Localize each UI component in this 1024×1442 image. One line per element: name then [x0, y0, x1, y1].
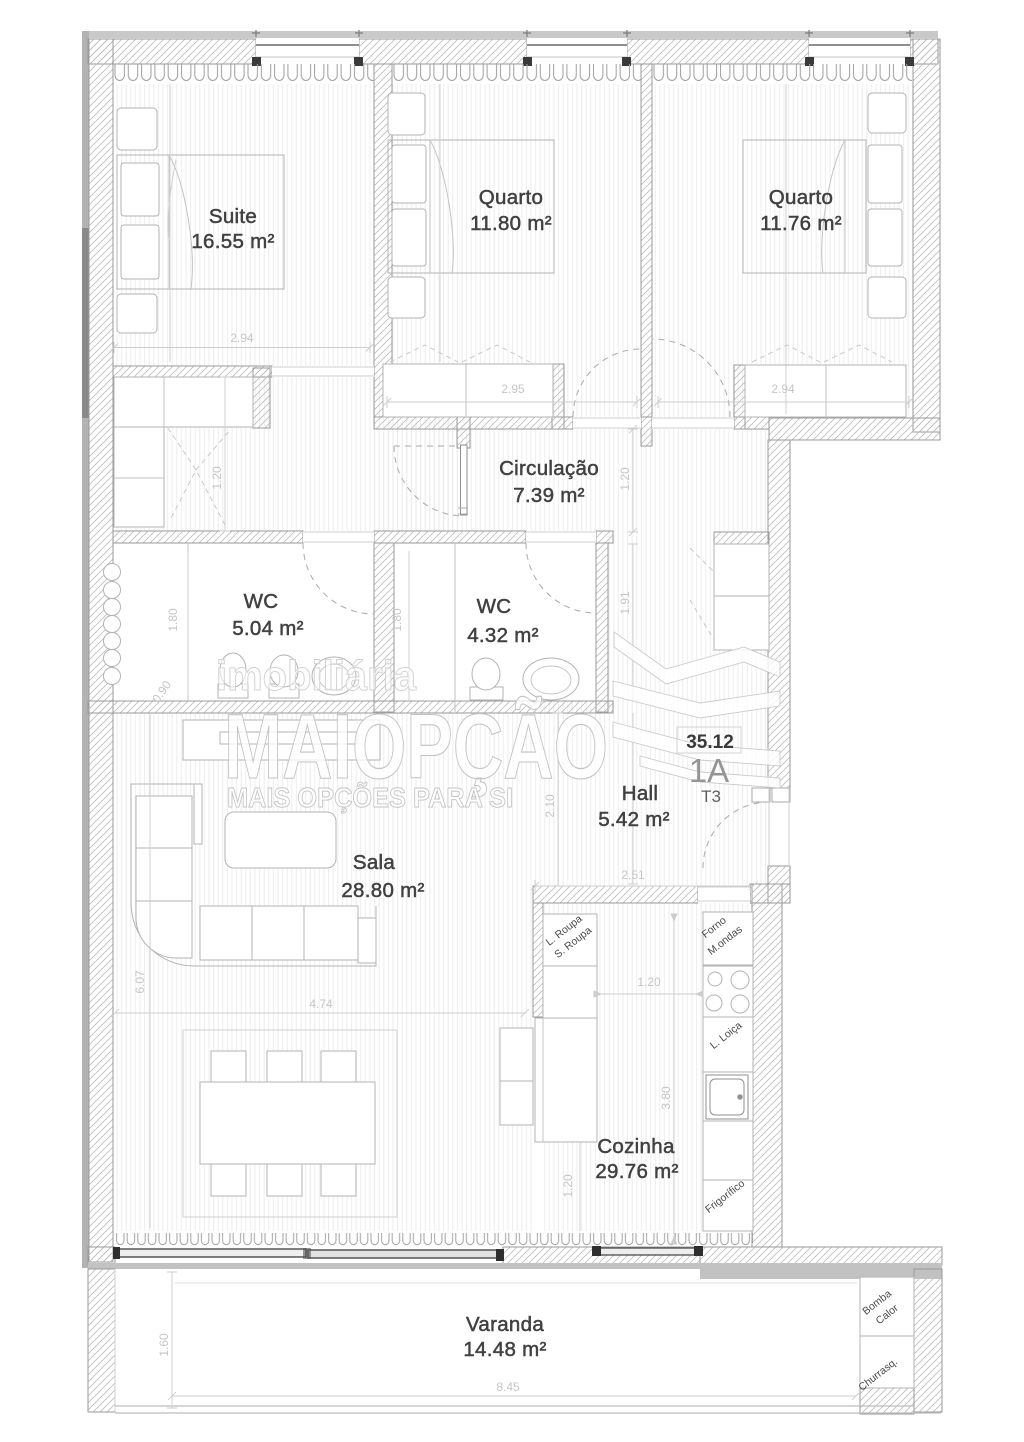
svg-text:1.20: 1.20	[561, 1174, 575, 1198]
svg-text:1.80: 1.80	[390, 608, 404, 632]
svg-text:WC: WC	[244, 590, 279, 613]
svg-text:imobiliária: imobiliária	[216, 652, 417, 699]
svg-text:3.80: 3.80	[659, 1086, 673, 1110]
svg-text:11.80 m²: 11.80 m²	[470, 212, 552, 235]
svg-text:MAIS OPÇÕES PARA SI: MAIS OPÇÕES PARA SI	[227, 782, 513, 813]
svg-text:Varanda: Varanda	[466, 1313, 544, 1336]
svg-text:1.60: 1.60	[157, 1333, 171, 1357]
svg-text:T3: T3	[701, 787, 721, 806]
svg-text:2.51: 2.51	[621, 868, 645, 882]
svg-text:11.76 m²: 11.76 m²	[760, 212, 842, 235]
svg-text:1A: 1A	[689, 752, 729, 789]
svg-text:7.39 m²: 7.39 m²	[513, 484, 585, 507]
svg-text:2.94: 2.94	[771, 382, 795, 396]
svg-text:Quarto: Quarto	[769, 186, 833, 209]
svg-text:1.80: 1.80	[166, 608, 180, 632]
svg-text:1.91: 1.91	[618, 591, 632, 615]
svg-text:6.07: 6.07	[133, 970, 147, 994]
svg-text:Cozinha: Cozinha	[597, 1135, 675, 1158]
svg-text:Quarto: Quarto	[479, 186, 543, 209]
svg-text:29.76 m²: 29.76 m²	[595, 1160, 678, 1183]
svg-text:Circulação: Circulação	[499, 457, 599, 480]
svg-text:5.42 m²: 5.42 m²	[598, 808, 670, 831]
svg-text:2.95: 2.95	[501, 382, 525, 396]
svg-text:16.55 m²: 16.55 m²	[191, 230, 274, 253]
svg-text:1.20: 1.20	[618, 467, 632, 491]
svg-text:5.04 m²: 5.04 m²	[232, 617, 304, 640]
svg-text:1.20: 1.20	[210, 466, 224, 490]
svg-text:4.74: 4.74	[309, 997, 333, 1011]
svg-text:28.80 m²: 28.80 m²	[341, 879, 424, 902]
svg-text:4.32 m²: 4.32 m²	[467, 624, 539, 647]
svg-text:35.12: 35.12	[686, 732, 734, 753]
svg-text:14.48 m²: 14.48 m²	[463, 1338, 546, 1361]
svg-text:2.94: 2.94	[230, 331, 254, 345]
svg-text:WC: WC	[477, 595, 512, 618]
svg-text:Hall: Hall	[622, 782, 659, 805]
svg-text:8.45: 8.45	[496, 1380, 520, 1394]
svg-text:Sala: Sala	[353, 851, 396, 874]
svg-text:1.20: 1.20	[637, 975, 661, 989]
svg-text:Suite: Suite	[209, 205, 257, 228]
